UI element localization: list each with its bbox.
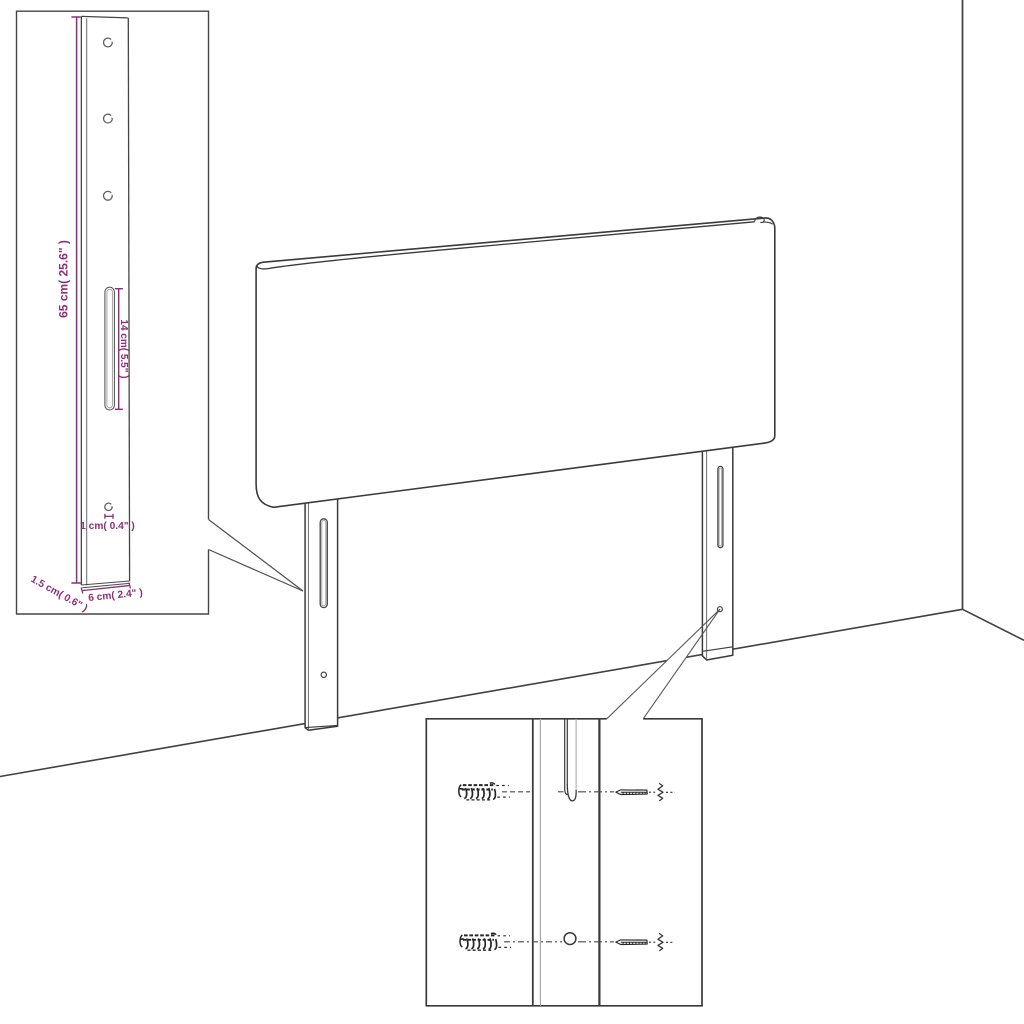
svg-text:65 cm( 25.6" ): 65 cm( 25.6" ) bbox=[57, 240, 71, 318]
svg-text:14 cm( 5.5" ): 14 cm( 5.5" ) bbox=[118, 319, 129, 378]
svg-text:1 cm( 0.4" ): 1 cm( 0.4" ) bbox=[80, 521, 135, 532]
